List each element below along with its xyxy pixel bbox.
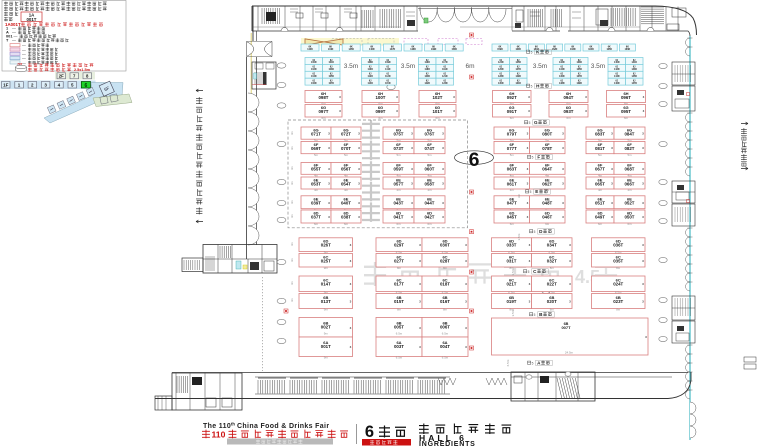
svg-text:052T: 052T [624, 200, 634, 205]
svg-text:105D: 105D [328, 76, 334, 78]
svg-text:106D: 106D [311, 83, 317, 85]
svg-text:098T: 098T [318, 95, 328, 100]
svg-text:054T: 054T [341, 181, 351, 186]
svg-text:4m: 4m [314, 188, 319, 192]
svg-text:076T: 076T [424, 131, 434, 136]
svg-text:055T: 055T [311, 167, 321, 172]
svg-text:039T: 039T [311, 200, 321, 205]
svg-text:100T: 100T [375, 95, 385, 100]
svg-text:6m: 6m [314, 222, 319, 226]
svg-text:032T: 032T [547, 258, 557, 263]
svg-text:5: 5 [529, 121, 531, 125]
svg-text:3m: 3m [290, 242, 294, 246]
svg-text:6.5m: 6.5m [396, 332, 403, 336]
svg-text:045T: 045T [507, 215, 517, 220]
svg-text:3m: 3m [290, 181, 294, 185]
svg-text:093T: 093T [563, 109, 573, 114]
svg-text:6.5m: 6.5m [442, 356, 449, 360]
svg-text:5: 5 [528, 270, 530, 274]
svg-text:072T: 072T [341, 131, 351, 136]
svg-text:040T: 040T [341, 200, 351, 205]
svg-text:142D: 142D [614, 68, 620, 71]
svg-text:143D: 143D [307, 48, 313, 51]
svg-text:100D: 100D [311, 62, 317, 64]
svg-text:9m: 9m [324, 332, 329, 336]
svg-text:079T: 079T [507, 131, 517, 136]
svg-text:3m: 3m [290, 298, 294, 302]
svg-text:056T: 056T [341, 167, 351, 172]
svg-text:049T: 049T [595, 215, 605, 220]
svg-text:1F: 1F [3, 83, 9, 88]
svg-text:137D: 137D [576, 76, 582, 78]
svg-text:150D: 150D [451, 49, 457, 51]
svg-text:123D: 123D [442, 83, 448, 85]
svg-text:075T: 075T [393, 131, 403, 136]
svg-text:4m: 4m [396, 188, 401, 192]
svg-text:5: 5 [531, 85, 533, 89]
svg-text:110D: 110D [368, 69, 374, 71]
svg-text:073T: 073T [393, 146, 403, 151]
svg-text:5m: 5m [510, 153, 515, 157]
svg-text:E: E [535, 189, 538, 194]
svg-text:8m: 8m [616, 308, 621, 312]
svg-text:047T: 047T [507, 200, 517, 205]
svg-text:084T: 084T [624, 131, 634, 136]
svg-text:6.5m: 6.5m [396, 356, 403, 360]
svg-text:3.5m: 3.5m [591, 63, 605, 70]
svg-text:107D: 107D [328, 83, 334, 85]
svg-text:001T: 001T [26, 17, 36, 22]
svg-text:4m: 4m [598, 188, 603, 192]
svg-text:8m: 8m [616, 266, 621, 270]
svg-text:053T: 053T [311, 181, 321, 186]
svg-text:070T: 070T [341, 146, 351, 151]
svg-text:165D: 165D [606, 49, 612, 51]
svg-text:057T: 057T [393, 181, 403, 186]
svg-text:5: 5 [530, 190, 532, 194]
svg-text:3m: 3m [290, 214, 294, 218]
svg-text:096T: 096T [621, 95, 631, 100]
svg-text:2F: 2F [59, 74, 64, 79]
svg-text:035T: 035T [613, 258, 623, 263]
svg-text:163D: 163D [570, 49, 576, 51]
svg-text:103D: 103D [328, 69, 334, 71]
svg-text:097T: 097T [318, 109, 328, 114]
svg-text:6m: 6m [378, 116, 383, 120]
svg-text:6m: 6m [510, 222, 515, 226]
svg-text:026T: 026T [321, 243, 331, 248]
svg-text:—: — [22, 61, 26, 65]
svg-text:044T: 044T [424, 200, 434, 205]
svg-text:104D: 104D [311, 75, 317, 78]
svg-text:6: 6 [469, 149, 480, 171]
svg-text:069T: 069T [311, 146, 321, 151]
svg-text:4m: 4m [627, 188, 632, 192]
svg-text:048T: 048T [542, 200, 552, 205]
svg-text:004T: 004T [440, 344, 450, 349]
svg-text:028T: 028T [440, 258, 450, 263]
svg-text:6m: 6m [598, 222, 603, 226]
svg-text:102T: 102T [432, 95, 442, 100]
svg-text:067T: 067T [595, 167, 605, 172]
svg-text:8m: 8m [550, 308, 555, 312]
svg-text:126D: 126D [498, 69, 504, 71]
svg-text:071T: 071T [311, 131, 321, 136]
svg-text:139D: 139D [576, 83, 582, 85]
svg-text:8m: 8m [397, 308, 402, 312]
svg-text:022T: 022T [547, 282, 557, 287]
svg-text:147D: 147D [390, 48, 396, 51]
svg-text:166D: 166D [625, 49, 631, 51]
svg-text:141D: 141D [631, 61, 637, 64]
svg-text:110: 110 [212, 429, 226, 439]
svg-text:6m: 6m [624, 116, 629, 120]
svg-text:051T: 051T [595, 200, 605, 205]
svg-text:101T: 101T [432, 109, 442, 114]
svg-text:114D: 114D [368, 82, 374, 85]
svg-text:160D: 160D [515, 49, 521, 51]
svg-text:041T: 041T [393, 215, 403, 220]
svg-text:046T: 046T [542, 215, 552, 220]
svg-text:018T: 018T [440, 282, 450, 287]
svg-text:9m: 9m [324, 356, 329, 360]
svg-text:003T: 003T [394, 344, 404, 349]
svg-text:001T: 001T [321, 344, 331, 349]
svg-text:037T: 037T [311, 215, 321, 220]
svg-text:132D: 132D [559, 62, 565, 64]
svg-text:3.5m: 3.5m [344, 63, 358, 70]
svg-text:INGREDIENTS: INGREDIENTS [419, 441, 476, 446]
svg-text:146D: 146D [369, 48, 375, 51]
svg-text:130D: 130D [498, 83, 504, 85]
svg-text:036T: 036T [613, 243, 623, 248]
svg-text:025T: 025T [321, 258, 331, 263]
svg-text:24.5m: 24.5m [565, 351, 574, 355]
svg-text:020T: 020T [547, 299, 557, 304]
svg-text:023T: 023T [613, 299, 623, 304]
svg-text:064T: 064T [542, 167, 552, 172]
svg-text:112D: 112D [368, 76, 374, 78]
svg-text:102D: 102D [311, 69, 317, 71]
svg-text:077T: 077T [507, 146, 517, 151]
svg-text:4m: 4m [427, 188, 432, 192]
svg-text:101D: 101D [328, 62, 334, 64]
svg-text:138D: 138D [559, 83, 565, 85]
svg-text:8m: 8m [550, 266, 555, 270]
svg-text:060T: 060T [424, 167, 434, 172]
svg-text:050T: 050T [624, 215, 634, 220]
svg-text:3m: 3m [290, 166, 294, 170]
svg-text:078T: 078T [542, 146, 552, 151]
svg-text:005T: 005T [394, 325, 404, 330]
svg-text:007T: 007T [561, 325, 571, 330]
svg-text:108D: 108D [367, 62, 373, 64]
svg-text:5: 5 [531, 51, 533, 55]
svg-text:5: 5 [534, 313, 536, 317]
svg-text:094T: 094T [563, 95, 573, 100]
svg-text:6m: 6m [435, 116, 440, 120]
svg-text:074T: 074T [424, 146, 434, 151]
svg-text:059T: 059T [393, 167, 403, 172]
svg-text:062T: 062T [542, 181, 552, 186]
svg-text:3m: 3m [290, 258, 294, 262]
svg-text:027T: 027T [394, 258, 404, 263]
svg-text:065T: 065T [595, 181, 605, 186]
svg-text:135D: 135D [576, 69, 582, 71]
svg-text:091T: 091T [507, 109, 517, 114]
svg-text:092T: 092T [507, 95, 517, 100]
svg-text:5m: 5m [598, 153, 603, 157]
svg-text:5: 5 [532, 362, 534, 366]
svg-text:3m: 3m [290, 131, 294, 135]
svg-text:117D: 117D [442, 62, 448, 64]
svg-text:014T: 014T [321, 282, 331, 287]
svg-text:8m: 8m [443, 308, 448, 312]
svg-text:8m: 8m [443, 266, 448, 270]
svg-text:063T: 063T [507, 167, 517, 172]
svg-text:3.5m: 3.5m [517, 233, 521, 240]
svg-text:015T: 015T [394, 299, 404, 304]
svg-text:006T: 006T [440, 325, 450, 330]
svg-text:124D: 124D [498, 61, 504, 64]
svg-text:127D: 127D [515, 69, 521, 71]
svg-text:019T: 019T [506, 299, 516, 304]
svg-text:3.5m: 3.5m [511, 268, 515, 275]
svg-text:6m: 6m [465, 63, 474, 70]
svg-text:6m: 6m [627, 222, 632, 226]
svg-text:6.5m: 6.5m [506, 359, 510, 366]
svg-text:120D: 120D [424, 76, 430, 78]
svg-text:125D: 125D [515, 62, 521, 64]
svg-text:9m: 9m [324, 266, 329, 270]
svg-text:3m: 3m [290, 146, 294, 150]
svg-text:3.5m: 3.5m [533, 63, 547, 70]
svg-text:143D: 143D [631, 68, 637, 71]
svg-text:6m: 6m [510, 116, 515, 120]
svg-text:099T: 099T [375, 109, 385, 114]
svg-text:145D: 145D [348, 48, 354, 51]
svg-text:6m: 6m [545, 222, 550, 226]
svg-text:5m: 5m [396, 153, 401, 157]
svg-text:2.5x1.5m: 2.5x1.5m [74, 68, 91, 72]
svg-text:6: 6 [85, 83, 88, 89]
svg-text:024T: 024T [613, 282, 623, 287]
svg-text:122D: 122D [424, 83, 430, 85]
svg-text:G: G [534, 120, 538, 125]
svg-text:F: F [537, 155, 540, 160]
svg-text:029T: 029T [394, 243, 404, 248]
svg-text:042T: 042T [424, 215, 434, 220]
svg-text:159D: 159D [497, 49, 503, 51]
svg-text:119D: 119D [442, 69, 448, 71]
svg-text:002T: 002T [321, 325, 331, 330]
svg-text:016T: 016T [440, 299, 450, 304]
svg-text:3m: 3m [290, 281, 294, 285]
svg-text:043T: 043T [393, 200, 403, 205]
svg-text:4m: 4m [344, 188, 349, 192]
svg-text:031T: 031T [506, 258, 516, 263]
svg-text:3m: 3m [517, 193, 521, 198]
svg-text:058T: 058T [424, 181, 434, 186]
svg-text:140D: 140D [614, 61, 620, 64]
svg-text:—: — [12, 38, 16, 43]
svg-text:5: 5 [532, 156, 534, 160]
svg-text:5: 5 [534, 230, 536, 234]
svg-text:080T: 080T [542, 131, 552, 136]
svg-text:162D: 162D [552, 49, 558, 51]
svg-text:6.5m: 6.5m [442, 332, 449, 336]
svg-text:3m: 3m [290, 200, 294, 204]
svg-text:118D: 118D [425, 69, 431, 71]
svg-text:082T: 082T [624, 146, 634, 151]
svg-text:013T: 013T [321, 299, 331, 304]
svg-text:131D: 131D [515, 83, 521, 85]
svg-text:136D: 136D [559, 76, 565, 78]
svg-text:146D: 146D [614, 82, 620, 85]
svg-text:134D: 134D [559, 68, 565, 71]
svg-text:121D: 121D [442, 76, 448, 78]
svg-text:111D: 111D [385, 69, 391, 71]
svg-text:6m: 6m [396, 222, 401, 226]
svg-text:6m: 6m [566, 116, 571, 120]
svg-text:164D: 164D [588, 48, 594, 51]
svg-text:061T: 061T [507, 181, 517, 186]
svg-text:China Food & Drinks Fair: China Food & Drinks Fair [237, 423, 329, 430]
svg-text:149D: 149D [431, 48, 437, 51]
svg-text:147D: 147D [631, 82, 637, 85]
svg-text:148D: 148D [410, 48, 416, 51]
svg-text:5m: 5m [627, 153, 632, 157]
svg-text:144D: 144D [614, 75, 620, 78]
svg-text:081T: 081T [595, 146, 605, 151]
svg-text:128D: 128D [498, 76, 504, 78]
svg-text:6m: 6m [427, 222, 432, 226]
svg-text:129D: 129D [515, 76, 521, 78]
svg-text:5m: 5m [314, 153, 319, 157]
svg-text:034T: 034T [547, 243, 557, 248]
svg-text:068T: 068T [624, 167, 634, 172]
svg-text:8m: 8m [397, 266, 402, 270]
svg-text:6m: 6m [321, 116, 326, 120]
svg-text:021T: 021T [506, 282, 516, 287]
svg-text:066T: 066T [624, 181, 634, 186]
svg-text:6: 6 [365, 423, 374, 441]
svg-text:5m: 5m [427, 153, 432, 157]
svg-text:133D: 133D [576, 62, 582, 64]
svg-text:3.5m: 3.5m [511, 309, 515, 316]
svg-text:038T: 038T [341, 215, 351, 220]
svg-text:116D: 116D [425, 62, 431, 64]
svg-text:3.5m: 3.5m [401, 63, 415, 70]
svg-text:115D: 115D [385, 83, 391, 85]
svg-text:030T: 030T [440, 243, 450, 248]
svg-text:5m: 5m [344, 153, 349, 157]
svg-text:144D: 144D [328, 48, 334, 51]
svg-text:6m: 6m [344, 222, 349, 226]
svg-text:th: th [231, 422, 235, 427]
svg-text:109D: 109D [385, 62, 391, 64]
svg-text:113D: 113D [385, 76, 391, 78]
svg-text:017T: 017T [394, 282, 404, 287]
svg-text:145D: 145D [631, 75, 637, 78]
svg-text:095T: 095T [621, 109, 631, 114]
svg-text:9m: 9m [324, 308, 329, 312]
svg-text:4m: 4m [510, 188, 515, 192]
svg-text:083T: 083T [595, 131, 605, 136]
svg-text:033T: 033T [506, 243, 516, 248]
